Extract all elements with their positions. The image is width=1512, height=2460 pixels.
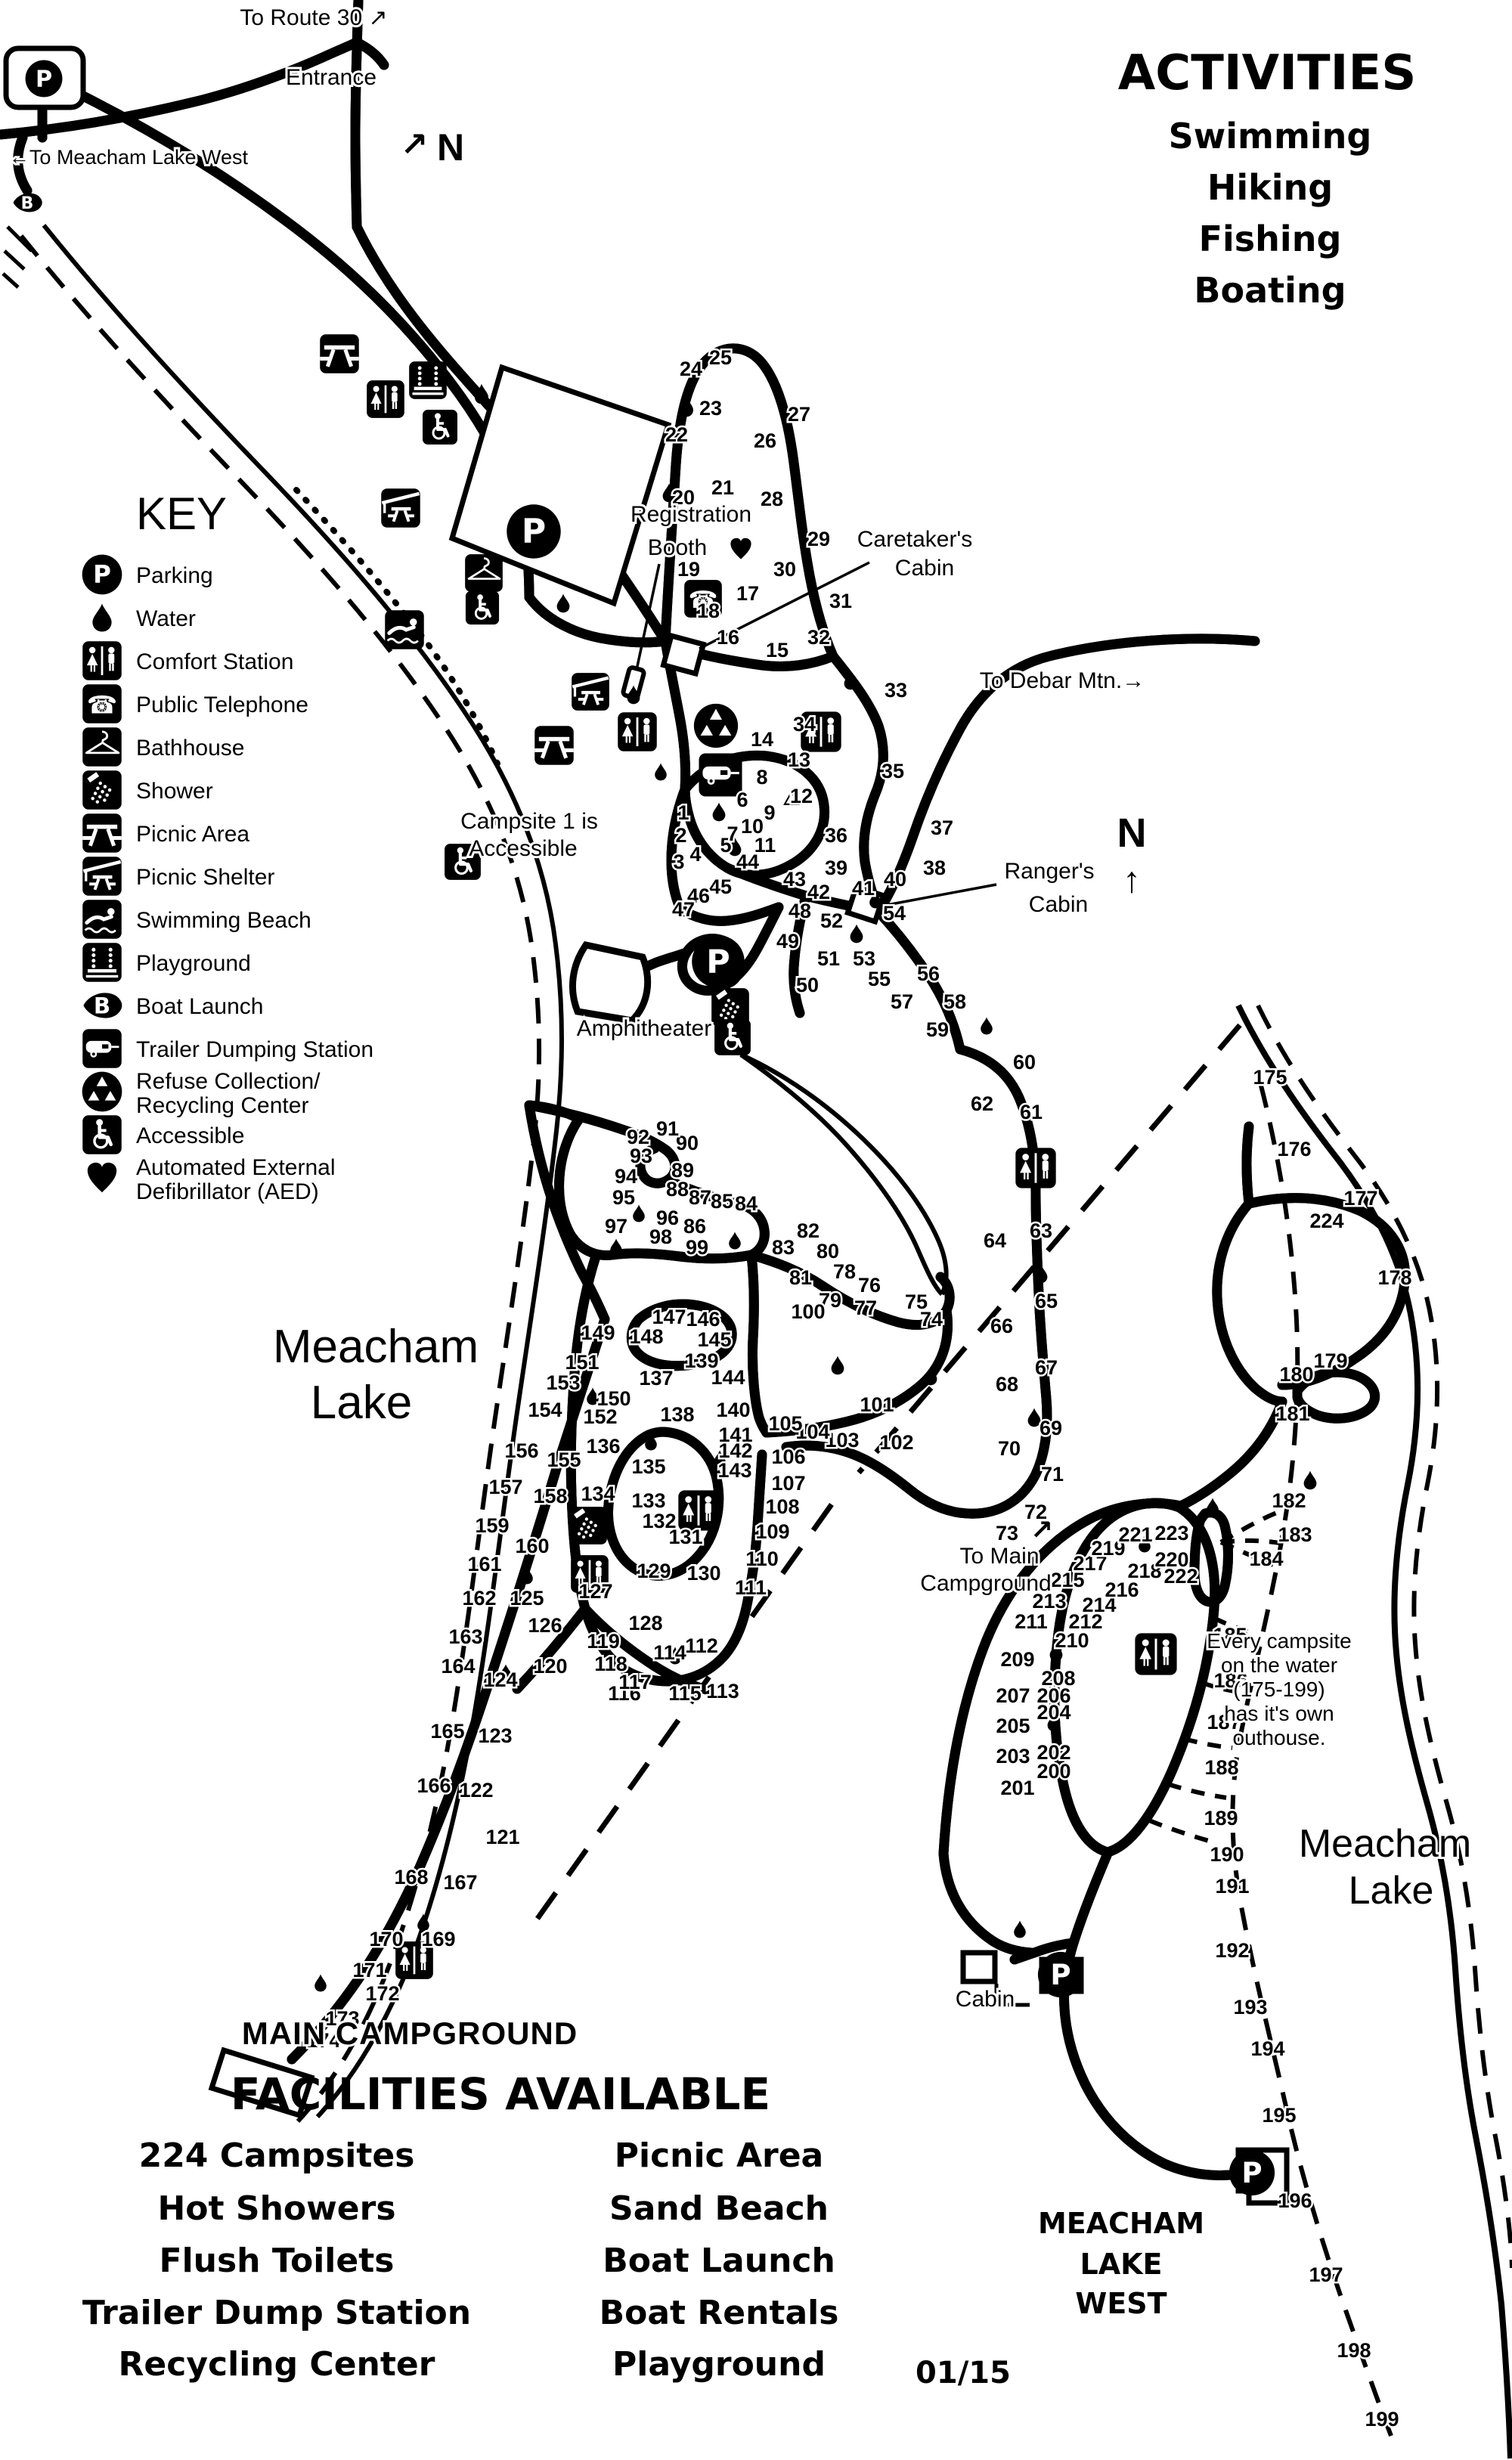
legend-boat-icon xyxy=(83,993,122,1018)
campsite-number: 136 xyxy=(586,1435,620,1458)
campsite-number: 128 xyxy=(628,1612,662,1634)
campsite-number: 170 xyxy=(369,1928,403,1950)
campsite-number: 47 xyxy=(672,898,695,921)
trail-outhouse-row xyxy=(1232,1086,1391,2436)
accessible-icon xyxy=(714,1019,751,1055)
campsite-number: 221 xyxy=(1118,1523,1152,1546)
campsite-number: 60 xyxy=(1013,1051,1036,1074)
legend-accessible-icon xyxy=(82,1115,122,1154)
accessible-icon xyxy=(466,591,499,624)
campsite-number: 95 xyxy=(612,1186,635,1209)
legend-label: Defibrillator (AED) xyxy=(136,1179,319,1204)
legend-swim-icon xyxy=(82,900,122,939)
campsite-number: 99 xyxy=(686,1236,708,1259)
facility-item: Picnic Area xyxy=(615,2136,824,2175)
legend-label: Boat Launch xyxy=(136,994,263,1019)
campsite-number: 54 xyxy=(883,902,906,925)
accessible-icon xyxy=(423,410,457,445)
campsite-number: 39 xyxy=(825,857,847,879)
campsite-number: 106 xyxy=(771,1445,805,1468)
campsite-number: 17 xyxy=(736,582,759,605)
campsite-number: 110 xyxy=(745,1548,779,1570)
campsite-number: 93 xyxy=(630,1145,652,1167)
map-label: ↗ xyxy=(401,126,429,163)
campsite-number: 118 xyxy=(594,1653,627,1675)
map-label: LAKE xyxy=(1080,2248,1162,2281)
water-icon xyxy=(850,925,863,943)
map-label: To Debar Mtn.→ xyxy=(980,668,1145,693)
water-icon xyxy=(1028,1408,1041,1427)
shower-icon xyxy=(569,1507,607,1544)
campsite-number: 163 xyxy=(448,1625,482,1648)
campsite-number: 124 xyxy=(483,1668,517,1691)
campsite-number: 160 xyxy=(515,1535,549,1557)
campsite-number: 205 xyxy=(996,1715,1030,1737)
campsite-number: 201 xyxy=(1000,1777,1034,1799)
campsite-number: 222 xyxy=(1163,1565,1198,1588)
campsite-number: 156 xyxy=(504,1439,538,1462)
water-icon xyxy=(832,1356,844,1375)
campsite-number: 103 xyxy=(825,1429,859,1452)
campsite-number: 78 xyxy=(833,1260,856,1283)
campsite-number: 6 xyxy=(736,789,748,811)
legend-label: Public Telephone xyxy=(136,692,308,717)
legend-heart-icon xyxy=(88,1163,116,1192)
campsite-number: 126 xyxy=(528,1614,562,1637)
campsite-number: 158 xyxy=(533,1485,567,1507)
campsite-number: 7 xyxy=(727,823,738,845)
legend-bathhouse-icon xyxy=(82,727,122,767)
campsite-number: 172 xyxy=(365,1982,399,2005)
key-title: KEY xyxy=(136,488,227,539)
map-label: To Route 30 ↗ xyxy=(240,5,387,30)
facility-item: Recycling Center xyxy=(119,2345,435,2384)
campsite-number: 31 xyxy=(829,590,852,612)
campsite-number: 3 xyxy=(673,850,684,873)
amphitheater-shape xyxy=(572,945,647,1021)
campsite-number: 49 xyxy=(776,930,799,953)
campsite-number: 18 xyxy=(697,600,720,622)
facility-item: Trailer Dump Station xyxy=(82,2294,471,2332)
water-icon xyxy=(981,1018,993,1035)
campsite-number: 197 xyxy=(1309,2263,1343,2286)
map-label: Lake xyxy=(1349,1869,1434,1913)
campsite-number: 105 xyxy=(768,1412,802,1435)
facility-item: Boat Launch xyxy=(603,2242,835,2280)
campsite-number: 180 xyxy=(1279,1363,1313,1386)
map-label: WEST xyxy=(1075,2287,1167,2320)
comfort-icon xyxy=(1015,1148,1055,1188)
cabin-building xyxy=(963,1953,995,1981)
legend-label: Picnic Area xyxy=(136,822,249,847)
activity-item: Boating xyxy=(1194,270,1346,311)
campsite-number: 207 xyxy=(996,1684,1030,1707)
campsite-number: 191 xyxy=(1215,1875,1249,1898)
water-icon xyxy=(1014,1921,1026,1938)
boat-icon xyxy=(14,194,42,213)
campsite-number: 130 xyxy=(686,1562,720,1585)
campsite-number: 21 xyxy=(711,476,734,499)
campsite-number: 143 xyxy=(717,1459,751,1482)
map-label: ↑ xyxy=(1123,860,1141,900)
legend-phone-icon xyxy=(82,684,122,723)
map-label: N xyxy=(437,126,464,169)
map-label: Campsite 1 is xyxy=(460,809,598,834)
campsite-number: 211 xyxy=(1015,1610,1048,1633)
campsite-number: 115 xyxy=(668,1682,702,1705)
recycle-icon xyxy=(694,704,738,748)
map-label: Booth xyxy=(648,535,707,560)
legend-label: Recycling Center xyxy=(136,1093,308,1118)
legend-water-icon xyxy=(92,604,111,632)
campsite-number: 64 xyxy=(984,1229,1006,1252)
campsite-number: 189 xyxy=(1204,1807,1238,1830)
campsite-number: 23 xyxy=(699,397,722,420)
campsite-number: 190 xyxy=(1210,1843,1244,1866)
campsite-number: 73 xyxy=(996,1522,1018,1544)
campsite-number: 41 xyxy=(852,877,875,900)
map-label: (175-199) xyxy=(1233,1678,1325,1701)
campsite-number: 83 xyxy=(772,1236,795,1259)
campsite-number: 53 xyxy=(853,947,875,970)
water-icon xyxy=(655,764,667,781)
map-label: 01/15 xyxy=(916,2356,1011,2390)
campsite-number: 224 xyxy=(1309,1210,1343,1232)
campsite-number: 164 xyxy=(441,1655,475,1678)
campsite-number: 154 xyxy=(528,1399,562,1421)
parking-icon xyxy=(26,60,63,98)
campsite-number: 209 xyxy=(1000,1648,1034,1671)
campsite-number: 9 xyxy=(764,801,775,824)
campsite-number: 12 xyxy=(790,785,813,807)
campsite-number: 37 xyxy=(931,816,953,839)
water-hatch xyxy=(3,227,32,287)
campsite-number: 135 xyxy=(631,1455,665,1478)
map-label: Entrance xyxy=(286,65,376,90)
campsite-number: 178 xyxy=(1377,1266,1411,1289)
campsite-number: 134 xyxy=(581,1483,615,1505)
campsite-number: 81 xyxy=(789,1266,812,1289)
campsite-number: 133 xyxy=(631,1489,665,1512)
activity-item: Hiking xyxy=(1207,167,1333,208)
campsite-number: 148 xyxy=(629,1325,663,1348)
map-label: Cabin xyxy=(1029,892,1088,917)
map-label: Every campsite xyxy=(1207,1629,1351,1653)
key-block: KEY ParkingWaterComfort StationPublic Te… xyxy=(82,488,373,1204)
campground-map-page: P ☎ B xyxy=(0,0,1512,2460)
water-icon xyxy=(1304,1471,1317,1490)
activities-title: ACTIVITIES xyxy=(1118,45,1417,101)
campsite-number: 167 xyxy=(443,1871,477,1894)
campsite-number: 16 xyxy=(717,626,739,649)
campsite-number: 157 xyxy=(488,1476,522,1498)
map-label: on the water xyxy=(1221,1653,1337,1677)
facility-item: 224 Campsites xyxy=(139,2136,415,2175)
campsite-number: 77 xyxy=(854,1297,877,1319)
legend-label: Accessible xyxy=(136,1123,244,1148)
campsite-number: 67 xyxy=(1035,1356,1058,1379)
campsite-number: 15 xyxy=(766,639,789,661)
campsite-number: 85 xyxy=(711,1190,733,1213)
campsite-number: 57 xyxy=(891,990,913,1013)
campsite-number: 107 xyxy=(771,1472,805,1495)
campsite-number: 4 xyxy=(689,843,701,866)
campsite-number: 145 xyxy=(697,1328,731,1351)
campsite-number: 55 xyxy=(868,968,891,990)
map-label: Registration xyxy=(631,502,751,527)
campsite-number: 177 xyxy=(1343,1187,1377,1210)
campsite-number: 59 xyxy=(926,1018,949,1041)
campsite-number: 44 xyxy=(736,850,759,873)
map-label: Ranger's xyxy=(1004,859,1094,884)
comfort-icon xyxy=(678,1490,718,1530)
campsite-number: 71 xyxy=(1041,1463,1064,1486)
heart-icon xyxy=(730,538,751,559)
campsite-number: 87 xyxy=(689,1186,711,1209)
facility-item: Playground xyxy=(612,2345,826,2384)
campsite-number: 140 xyxy=(716,1399,750,1421)
campsite-number: 28 xyxy=(761,488,783,510)
campsite-number: 97 xyxy=(605,1215,627,1238)
campsite-number: 125 xyxy=(510,1587,544,1610)
campsite-number: 192 xyxy=(1215,1939,1249,1962)
campsite-number: 63 xyxy=(1030,1219,1052,1242)
comfort-icon xyxy=(367,380,404,418)
campsite-number: 108 xyxy=(765,1495,799,1518)
map-label: MEACHAM xyxy=(1038,2207,1204,2240)
water-icon xyxy=(557,594,570,613)
campsite-number: 50 xyxy=(796,974,819,996)
campsite-number: 102 xyxy=(879,1431,913,1454)
campsite-number: 182 xyxy=(1272,1489,1306,1512)
campsite-number: 159 xyxy=(475,1514,509,1537)
parking-icon xyxy=(1229,2150,1275,2195)
trailer-icon xyxy=(699,753,742,796)
campsite-number: 120 xyxy=(533,1655,567,1678)
campsite-number: 181 xyxy=(1275,1402,1309,1425)
legend-shower-icon xyxy=(82,770,122,810)
campsite-number: 66 xyxy=(990,1315,1013,1337)
campsite-number: 208 xyxy=(1041,1667,1075,1690)
bathhouse-icon xyxy=(465,554,503,592)
campsite-number: 101 xyxy=(860,1393,894,1416)
campsite-number: 193 xyxy=(1233,1996,1267,2019)
comfort-icon xyxy=(1135,1633,1176,1675)
shelter-icon xyxy=(381,488,420,528)
campsite-number: 90 xyxy=(676,1132,699,1154)
legend-picnic-icon xyxy=(82,813,122,853)
legend-label: Automated External xyxy=(136,1155,335,1180)
legend-label: Water xyxy=(136,606,196,631)
campsite-number: 176 xyxy=(1277,1138,1311,1160)
campsite-number: 183 xyxy=(1278,1523,1312,1546)
campsite-number: 109 xyxy=(755,1520,789,1543)
campsite-number: 199 xyxy=(1365,2408,1399,2431)
campsite-number: 111 xyxy=(735,1576,767,1599)
legend-label: Swimming Beach xyxy=(136,908,311,933)
campsite-number: 196 xyxy=(1278,2189,1312,2212)
campsite-number: 24 xyxy=(680,358,702,380)
campsite-number: 123 xyxy=(478,1724,512,1747)
campsite-number: 179 xyxy=(1313,1349,1347,1372)
campsite-number: 27 xyxy=(788,403,810,426)
campsite-number: 26 xyxy=(754,429,776,452)
campsite-number: 149 xyxy=(581,1321,615,1344)
campsite-number: 45 xyxy=(709,875,732,898)
campsite-number: 175 xyxy=(1253,1066,1287,1089)
water-icon xyxy=(1207,1498,1219,1516)
campsite-number: 76 xyxy=(858,1274,881,1297)
map-label: ↗ xyxy=(1030,1514,1053,1545)
parking-icon xyxy=(507,504,560,558)
campsite-number: 13 xyxy=(788,748,810,771)
campsite-number: 138 xyxy=(660,1403,694,1426)
campsite-number: 19 xyxy=(677,558,700,581)
map-label: Accessible xyxy=(469,836,577,861)
campsite-number: 153 xyxy=(546,1371,580,1394)
facilities-block: FACILITIES AVAILABLE 224 CampsitesHot Sh… xyxy=(82,2068,839,2384)
map-label: Campground xyxy=(920,1571,1051,1596)
map-label: MAIN CAMPGROUND xyxy=(242,2015,578,2051)
campsite-number: 52 xyxy=(820,909,843,932)
campsite-number: 91 xyxy=(656,1117,679,1140)
shelter-icon xyxy=(572,673,609,711)
map-label: ←To Meacham Lake West xyxy=(9,146,249,169)
swim-icon xyxy=(385,610,424,649)
campsite-number: 30 xyxy=(773,558,796,581)
water-icon xyxy=(314,1975,327,1992)
map-label: outhouse. xyxy=(1233,1726,1326,1749)
campsite-number: 82 xyxy=(797,1219,820,1242)
campsite-number: 56 xyxy=(917,962,940,985)
campsite-number: 98 xyxy=(649,1225,672,1248)
campsite-number: 36 xyxy=(825,824,847,847)
campsite-number: 129 xyxy=(637,1560,671,1582)
legend-label: Shower xyxy=(136,779,213,804)
campsite-number: 40 xyxy=(884,868,906,891)
facilities-title: FACILITIES AVAILABLE xyxy=(231,2068,770,2120)
map-label: Cabin xyxy=(895,556,954,581)
campground-map: P ☎ B xyxy=(0,0,1512,2460)
facility-item: Sand Beach xyxy=(609,2189,829,2228)
campsite-number: 69 xyxy=(1039,1417,1062,1439)
playground-icon xyxy=(409,361,447,399)
campsite-number: 152 xyxy=(583,1405,617,1428)
campsite-number: 86 xyxy=(683,1215,706,1238)
campsite-number: 32 xyxy=(807,626,830,649)
facility-item: Hot Showers xyxy=(157,2189,395,2228)
legend-label: Refuse Collection/ xyxy=(136,1069,321,1094)
campsite-number: 84 xyxy=(735,1192,758,1215)
campsite-number: 161 xyxy=(467,1553,501,1575)
campsite-number: 198 xyxy=(1337,2339,1371,2362)
campsite-number: 151 xyxy=(565,1351,599,1374)
campsite-number: 33 xyxy=(885,679,907,702)
campsite-number: 171 xyxy=(352,1959,386,1981)
campsite-number: 162 xyxy=(462,1587,496,1610)
campsite-number: 112 xyxy=(685,1634,718,1657)
map-label: Cabin xyxy=(956,1987,1015,2012)
picnic-icon xyxy=(534,726,574,765)
campsite-number: 25 xyxy=(709,346,732,369)
campsite-number: 166 xyxy=(417,1774,451,1797)
legend-recycle-icon xyxy=(82,1072,122,1112)
campsite-number: 223 xyxy=(1154,1522,1188,1544)
campsite-number: 132 xyxy=(642,1510,676,1532)
campsite-number: 80 xyxy=(816,1240,839,1263)
facility-item: Flush Toilets xyxy=(160,2242,395,2280)
campsite-number: 121 xyxy=(485,1826,519,1848)
campsite-number: 35 xyxy=(881,760,904,782)
campsite-number: 114 xyxy=(653,1641,686,1664)
water-icon xyxy=(610,1239,622,1256)
campsite-number: 184 xyxy=(1249,1548,1283,1570)
campsite-number: 89 xyxy=(671,1159,694,1182)
campsite-number: 122 xyxy=(459,1779,493,1802)
campsite-number: 144 xyxy=(711,1366,745,1389)
campsite-number: 29 xyxy=(807,528,830,550)
activities-block: ACTIVITIES SwimmingHikingFishingBoating xyxy=(1118,45,1417,311)
legend-label: Parking xyxy=(136,563,213,588)
activity-item: Fishing xyxy=(1199,218,1342,259)
water-icon xyxy=(729,1232,741,1250)
campsite-number: 62 xyxy=(971,1092,993,1115)
map-label: Lake xyxy=(311,1377,412,1429)
map-label: Meacham xyxy=(1299,1822,1471,1866)
campsite-number: 70 xyxy=(998,1437,1021,1460)
map-label: Amphitheater xyxy=(577,1016,711,1041)
campsite-number: 94 xyxy=(615,1165,637,1188)
legend-comfort-icon xyxy=(82,641,122,680)
campsite-number: 195 xyxy=(1262,2104,1296,2127)
legend-label: Bathhouse xyxy=(136,736,244,761)
map-label: Meacham xyxy=(273,1321,479,1373)
map-label: N xyxy=(1117,810,1147,856)
campsite-number: 168 xyxy=(394,1866,428,1888)
campsite-number: 58 xyxy=(943,990,966,1013)
legend-label: Playground xyxy=(136,951,251,976)
parking-icon xyxy=(692,935,745,988)
campsite-number: 194 xyxy=(1250,2037,1284,2060)
campsite-number: 34 xyxy=(793,713,816,736)
legend-playground-icon xyxy=(82,943,122,982)
campsite-number: 146 xyxy=(686,1308,720,1331)
campsite-number: 61 xyxy=(1020,1101,1043,1123)
campsite-number: 22 xyxy=(665,423,688,446)
campsite-number: 65 xyxy=(1035,1290,1058,1312)
facility-item: Boat Rentals xyxy=(600,2294,839,2332)
campsite-number: 8 xyxy=(756,766,767,789)
campsite-number: 119 xyxy=(587,1630,620,1653)
campsite-number: 43 xyxy=(783,868,806,891)
campsite-number: 48 xyxy=(789,900,811,922)
campsite-number: 38 xyxy=(923,857,946,879)
campsite-number: 127 xyxy=(578,1580,612,1603)
campsite-number: 137 xyxy=(639,1367,673,1390)
campsite-number: 202 xyxy=(1036,1741,1070,1764)
campsite-number: 203 xyxy=(996,1745,1030,1768)
map-label: Caretaker's xyxy=(857,527,972,552)
campsite-number: 169 xyxy=(421,1928,455,1950)
campsite-number: 113 xyxy=(706,1680,739,1702)
comfort-icon xyxy=(618,712,657,751)
campsite-number: 75 xyxy=(905,1290,928,1313)
legend-parking-icon xyxy=(82,555,122,595)
campsite-number: 51 xyxy=(817,947,840,970)
campsite-number: 68 xyxy=(996,1373,1018,1396)
campsite-number: 100 xyxy=(791,1300,825,1323)
legend-label: Trailer Dumping Station xyxy=(136,1037,373,1062)
